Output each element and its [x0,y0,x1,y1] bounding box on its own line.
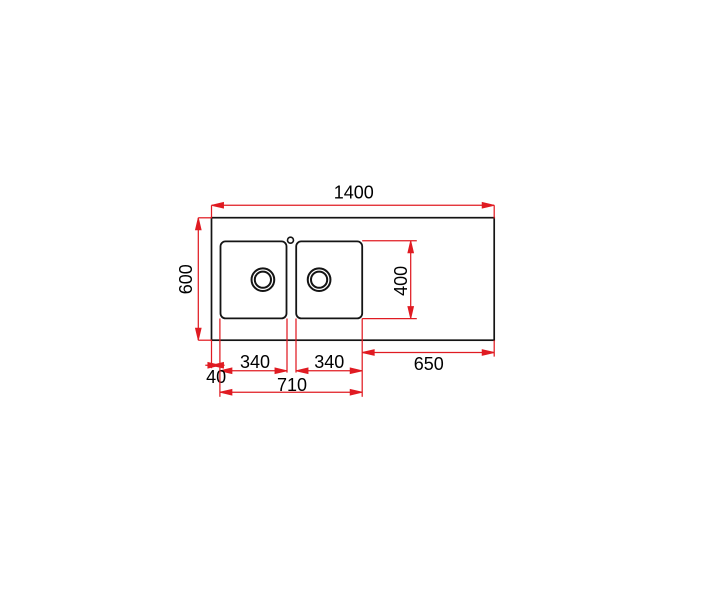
svg-text:710: 710 [277,375,307,395]
svg-text:1400: 1400 [334,183,374,203]
svg-text:650: 650 [414,354,444,374]
svg-text:40: 40 [206,367,226,387]
svg-text:340: 340 [314,352,344,372]
svg-text:400: 400 [391,266,411,296]
svg-text:340: 340 [240,352,270,372]
svg-text:600: 600 [176,264,196,294]
